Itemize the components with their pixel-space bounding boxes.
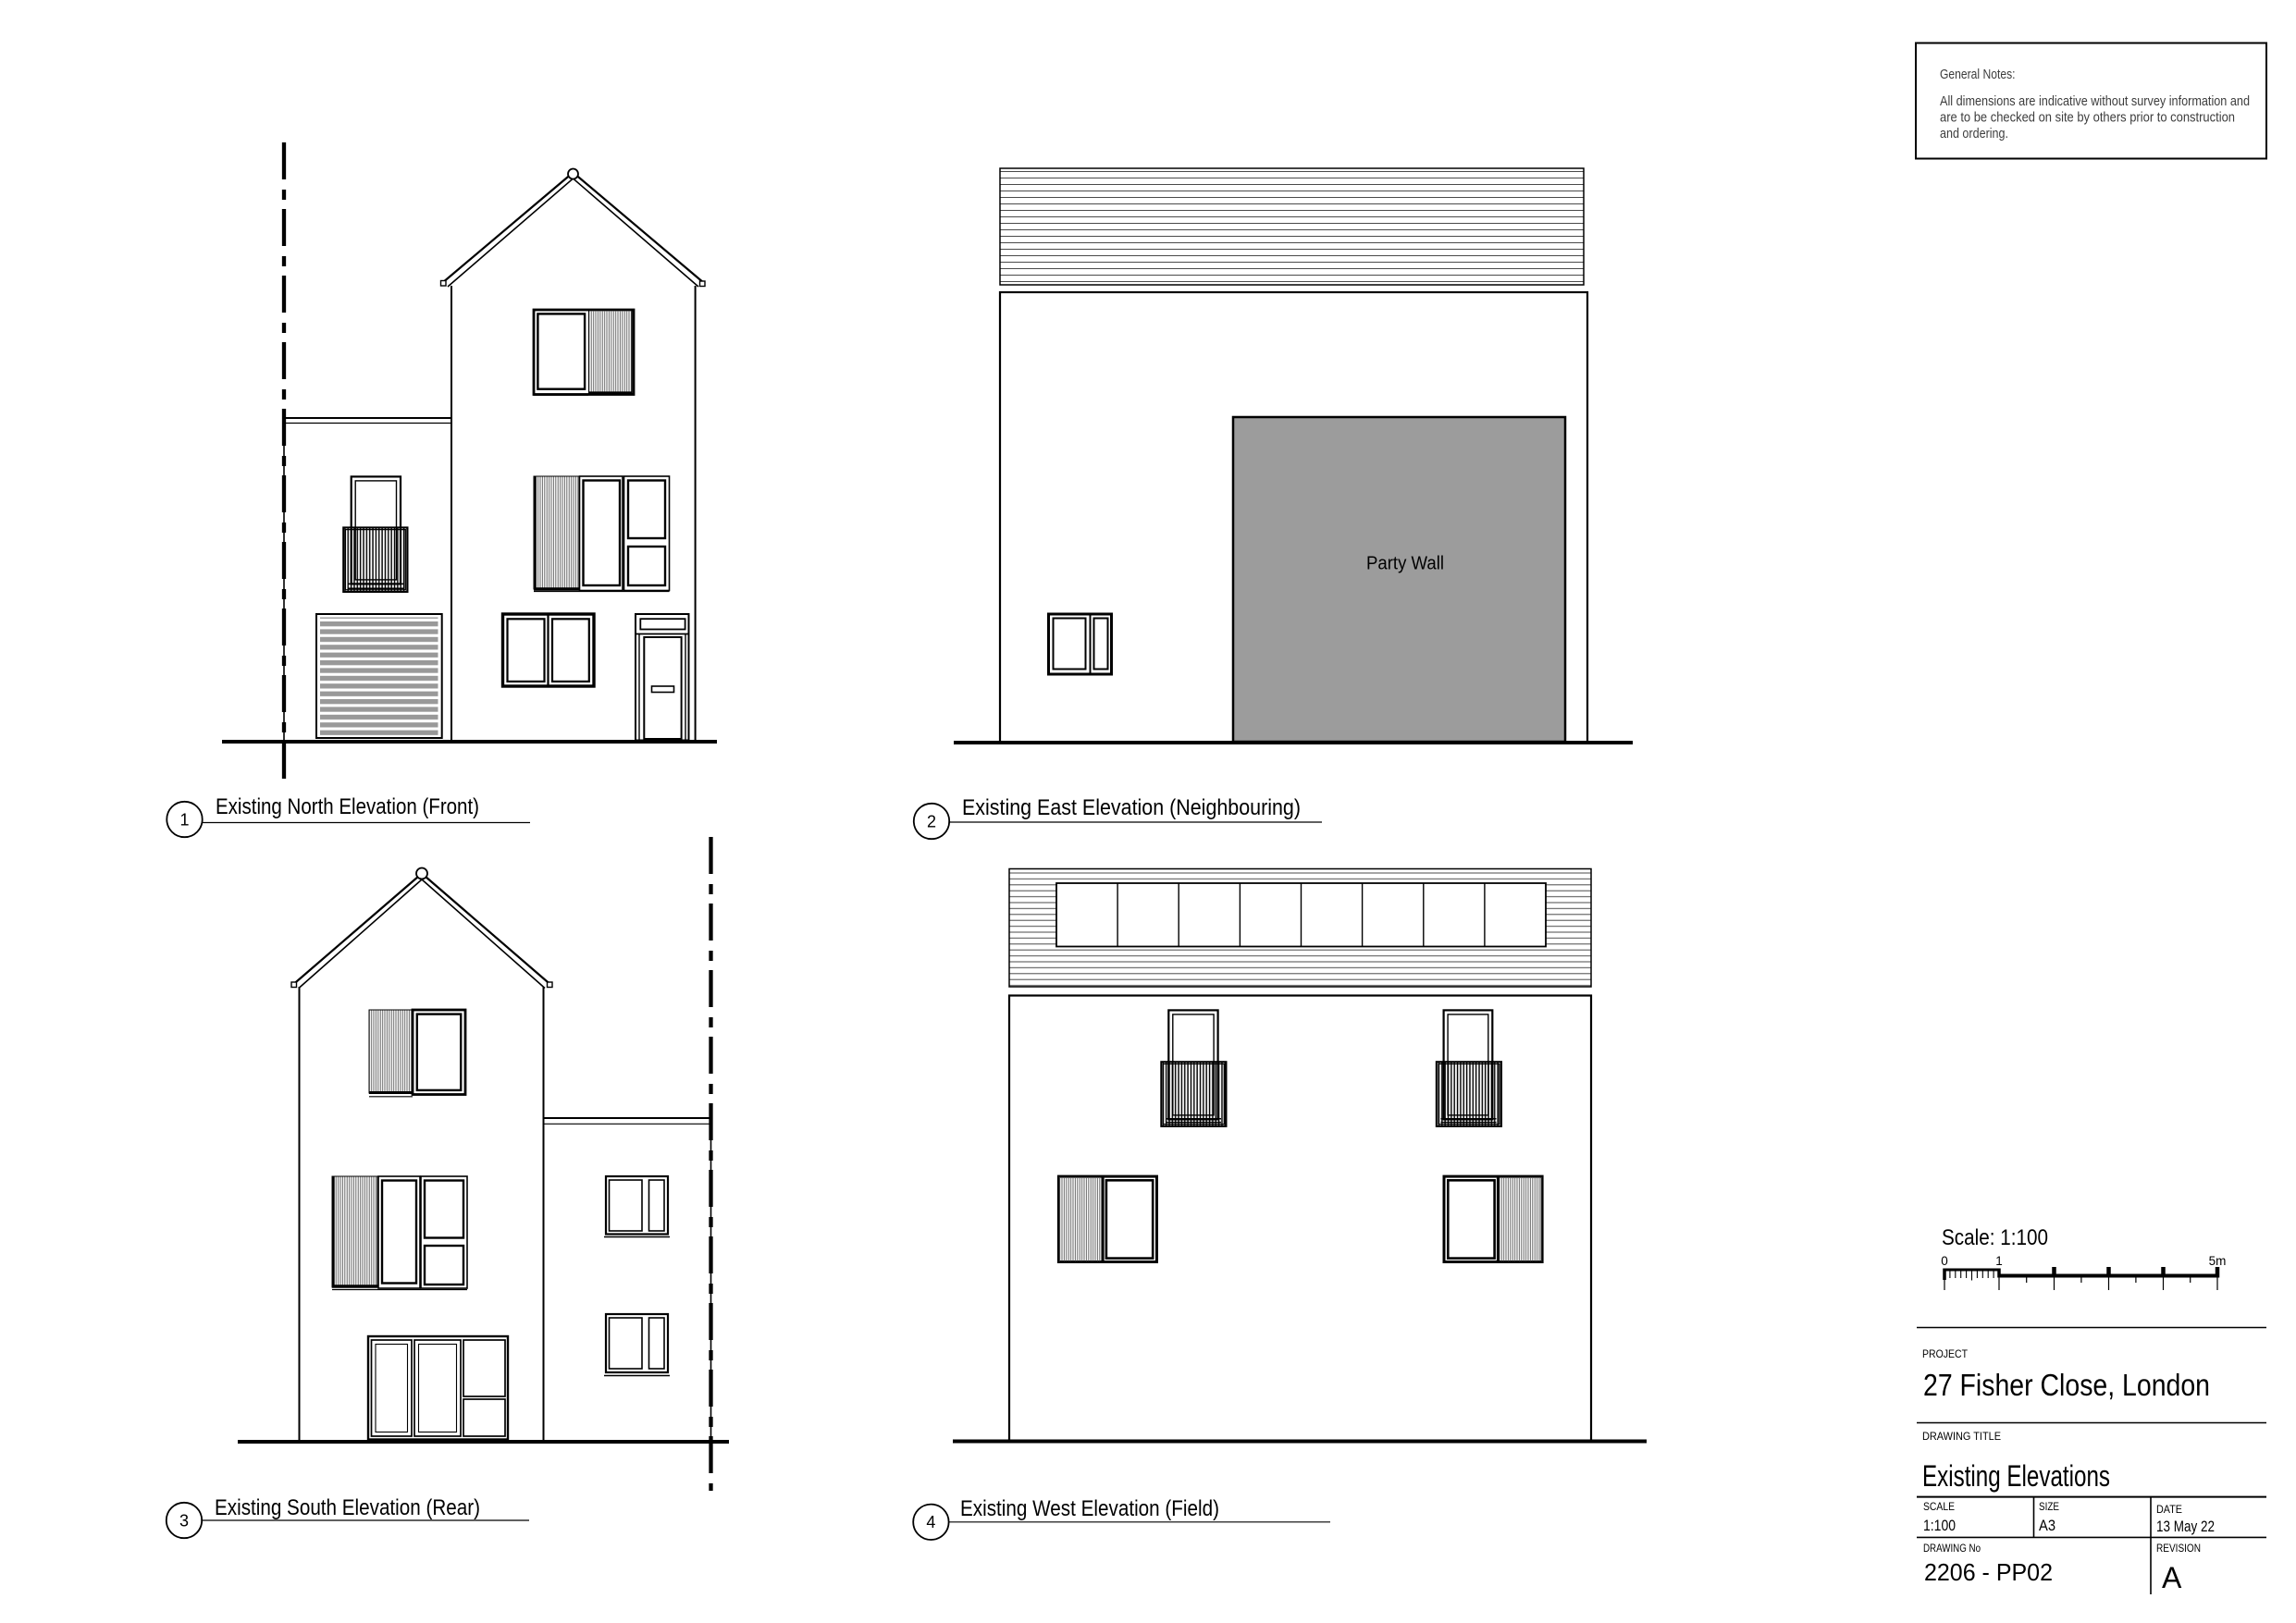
svg-text:1: 1 [179, 810, 189, 829]
svg-text:SIZE: SIZE [2039, 1500, 2059, 1513]
svg-text:A: A [2162, 1561, 2182, 1594]
svg-text:All dimensions are indicative: All dimensions are indicative without su… [1940, 93, 2250, 109]
svg-text:A3: A3 [2039, 1517, 2055, 1534]
svg-text:are to be checked on site by o: are to be checked on site by others prio… [1940, 110, 2235, 126]
svg-text:5m: 5m [2209, 1254, 2227, 1268]
svg-text:2206 - PP02: 2206 - PP02 [1924, 1558, 2053, 1586]
svg-text:and ordering.: and ordering. [1940, 126, 2008, 141]
svg-text:Existing North Elevation (Fron: Existing North Elevation (Front) [216, 794, 479, 819]
svg-text:Existing East Elevation (Neigh: Existing East Elevation (Neighbouring) [962, 795, 1301, 820]
svg-text:1:100: 1:100 [1923, 1517, 1956, 1534]
svg-text:27 Fisher Close, London: 27 Fisher Close, London [1923, 1368, 2210, 1402]
svg-text:Existing West Elevation (Field: Existing West Elevation (Field) [960, 1496, 1219, 1521]
svg-text:2: 2 [927, 812, 936, 830]
svg-text:SCALE: SCALE [1923, 1500, 1955, 1513]
svg-text:3: 3 [179, 1511, 189, 1530]
svg-text:13 May 22: 13 May 22 [2156, 1518, 2215, 1535]
svg-text:Party Wall: Party Wall [1366, 554, 1444, 574]
svg-text:Existing South Elevation (Rear: Existing South Elevation (Rear) [215, 1495, 480, 1520]
svg-text:Existing Elevations: Existing Elevations [1922, 1459, 2110, 1493]
svg-text:1: 1 [1995, 1254, 2003, 1268]
svg-text:General Notes:: General Notes: [1940, 67, 2016, 82]
svg-text:4: 4 [926, 1513, 935, 1531]
svg-text:0: 0 [1941, 1254, 1948, 1268]
svg-text:PROJECT: PROJECT [1922, 1347, 1969, 1360]
svg-text:DRAWING TITLE: DRAWING TITLE [1922, 1430, 2001, 1443]
svg-text:Scale: 1:100: Scale: 1:100 [1942, 1225, 2048, 1250]
svg-text:DRAWING No: DRAWING No [1923, 1542, 1981, 1555]
svg-text:DATE: DATE [2156, 1503, 2182, 1516]
svg-text:REVISION: REVISION [2156, 1542, 2201, 1555]
